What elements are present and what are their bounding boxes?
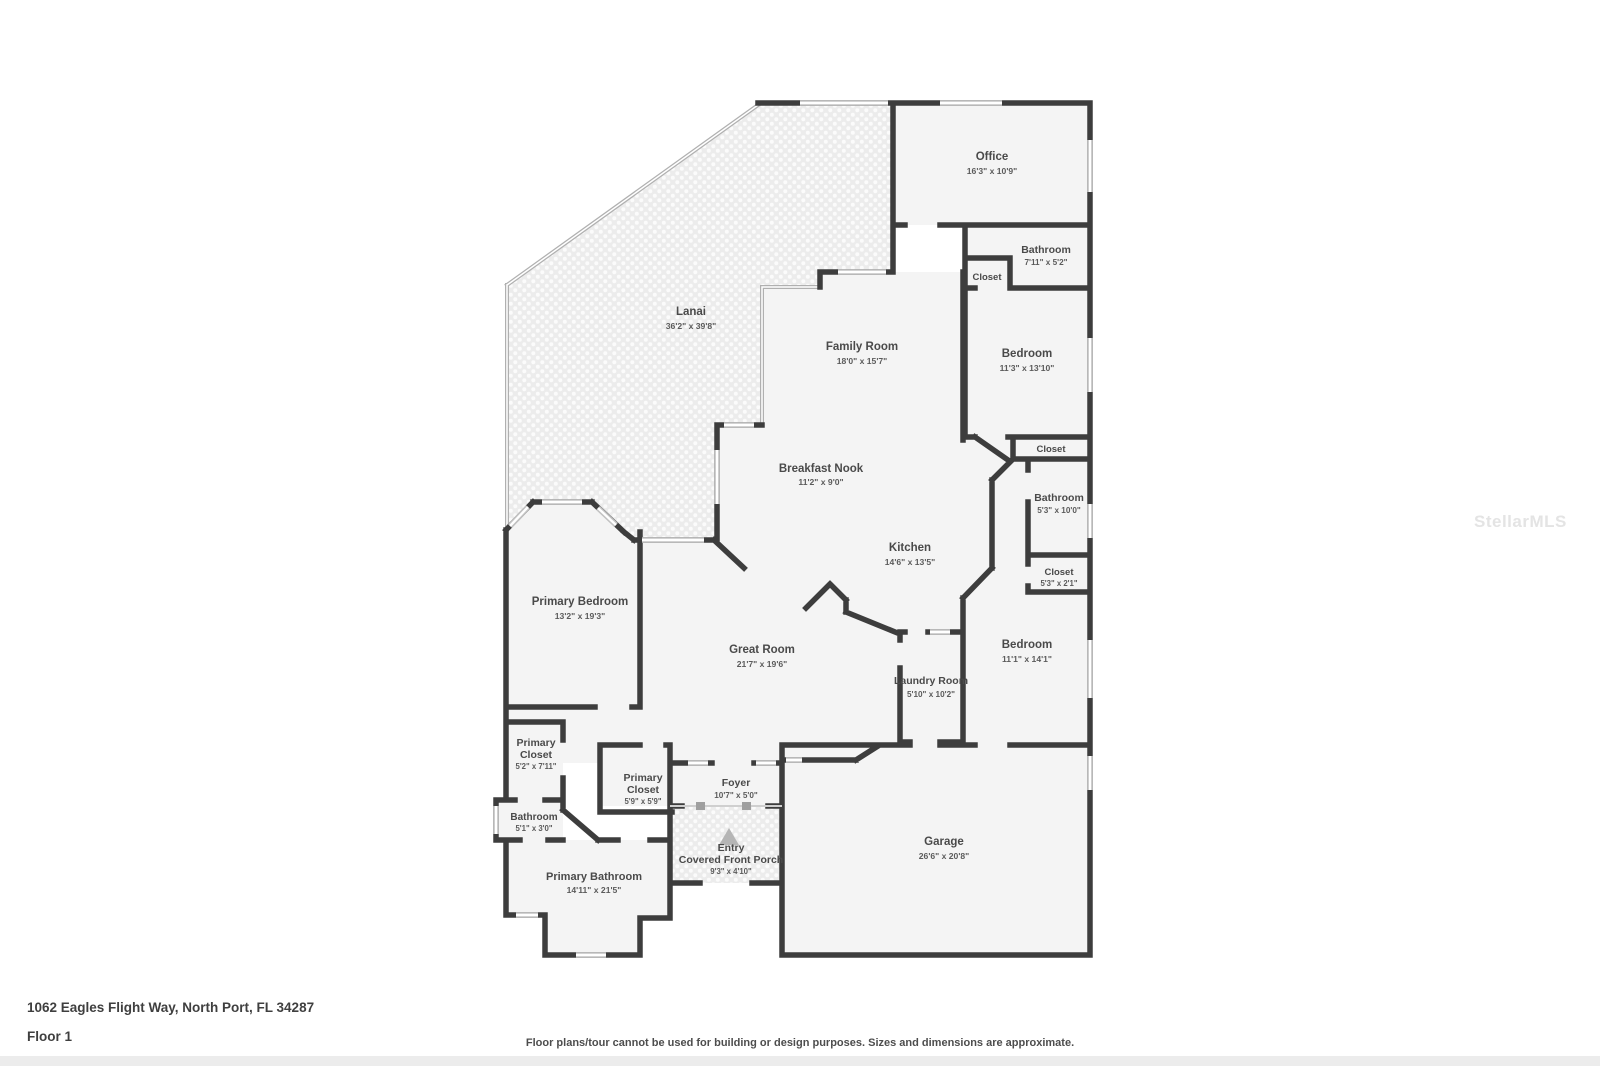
svg-text:Closet: Closet: [627, 784, 660, 796]
label-primary-closet1: Primary: [516, 737, 555, 749]
label-primary-bathroom: Primary Bathroom: [546, 871, 642, 883]
label-primary-bedroom: Primary Bedroom: [532, 596, 629, 608]
svg-text:5'3" x 2'1": 5'3" x 2'1": [1040, 579, 1077, 588]
svg-text:10'7" x 5'0": 10'7" x 5'0": [714, 791, 758, 800]
svg-text:5'3" x 10'0": 5'3" x 10'0": [1037, 506, 1081, 515]
label-laundry: Laundry Room: [894, 675, 968, 687]
label-bedroom1: Bedroom: [1002, 348, 1052, 360]
svg-text:Covered Front Porch: Covered Front Porch: [679, 854, 783, 866]
disclaimer-text: Floor plans/tour cannot be used for buil…: [0, 1037, 1600, 1049]
label-entry: Entry: [718, 842, 745, 854]
label-closet-right: Closet: [1044, 567, 1074, 578]
label-bathroom-right: Bathroom: [1034, 492, 1084, 504]
label-great-room: Great Room: [729, 644, 795, 656]
label-kitchen: Kitchen: [889, 542, 931, 554]
svg-text:11'2" x 9'0": 11'2" x 9'0": [798, 477, 843, 487]
bottom-strip: [0, 1056, 1600, 1066]
label-primary-closet2: Primary: [623, 772, 662, 784]
label-breakfast-nook: Breakfast Nook: [779, 463, 864, 475]
label-bathroom-small: Bathroom: [510, 812, 557, 823]
floor-plan-drawing: Office 16'3" x 10'9" Bathroom 7'11" x 5'…: [0, 0, 1600, 1066]
svg-text:26'6" x 20'8": 26'6" x 20'8": [919, 851, 969, 861]
label-closet-top: Closet: [972, 272, 1002, 283]
svg-text:36'2" x 39'8": 36'2" x 39'8": [666, 321, 716, 331]
label-office: Office: [976, 151, 1009, 163]
svg-text:5'9" x 5'9": 5'9" x 5'9": [624, 797, 661, 806]
svg-text:11'3" x 13'10": 11'3" x 13'10": [1000, 363, 1055, 373]
label-bedroom2: Bedroom: [1002, 639, 1052, 651]
svg-text:14'11" x 21'5": 14'11" x 21'5": [567, 885, 622, 895]
svg-text:11'1" x 14'1": 11'1" x 14'1": [1002, 654, 1052, 664]
svg-text:16'3" x 10'9": 16'3" x 10'9": [967, 166, 1017, 176]
label-bathroom-top: Bathroom: [1021, 244, 1071, 256]
svg-text:5'1" x 3'0": 5'1" x 3'0": [515, 824, 552, 833]
label-garage: Garage: [924, 836, 964, 848]
floor-plan: Office 16'3" x 10'9" Bathroom 7'11" x 5'…: [0, 0, 1600, 1066]
svg-text:7'11" x 5'2": 7'11" x 5'2": [1024, 258, 1067, 267]
svg-text:Closet: Closet: [520, 749, 553, 761]
svg-text:5'2" x 7'11": 5'2" x 7'11": [515, 762, 556, 771]
label-family-room: Family Room: [826, 341, 898, 353]
label-closet-mid: Closet: [1036, 444, 1066, 455]
svg-text:21'7" x 19'6": 21'7" x 19'6": [737, 659, 787, 669]
property-address: 1062 Eagles Flight Way, North Port, FL 3…: [27, 1000, 314, 1015]
svg-text:13'2" x 19'3": 13'2" x 19'3": [555, 611, 605, 621]
label-foyer: Foyer: [722, 777, 751, 789]
svg-text:9'3" x 4'10": 9'3" x 4'10": [710, 867, 752, 876]
stellar-mls-watermark: StellarMLS: [1474, 512, 1567, 532]
svg-text:14'6" x 13'5": 14'6" x 13'5": [885, 557, 935, 567]
label-lanai: Lanai: [676, 306, 706, 318]
svg-text:5'10" x 10'2": 5'10" x 10'2": [907, 690, 955, 699]
svg-text:18'0" x 15'7": 18'0" x 15'7": [837, 356, 887, 366]
